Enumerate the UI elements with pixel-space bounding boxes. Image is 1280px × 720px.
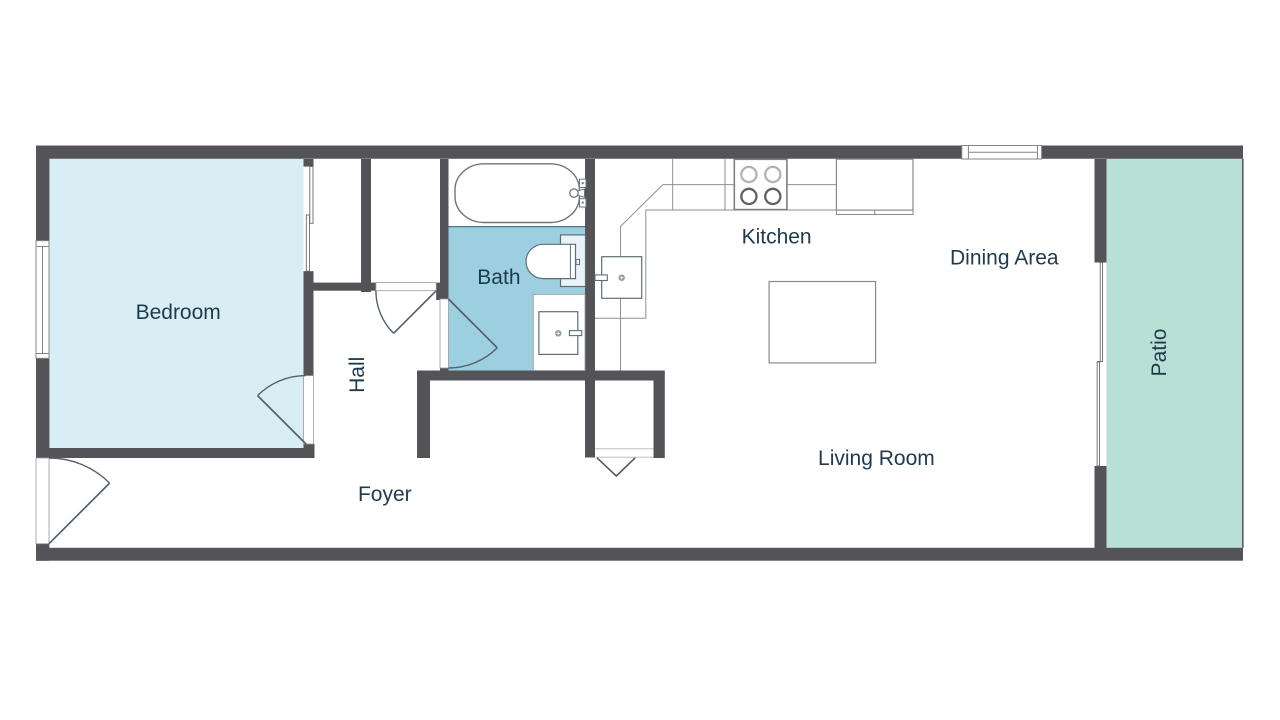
svg-text:Living Room: Living Room [818, 447, 935, 470]
svg-text:Dining Area: Dining Area [950, 247, 1059, 270]
svg-text:Bedroom: Bedroom [136, 301, 221, 324]
svg-text:Bath: Bath [477, 266, 520, 289]
svg-text:Patio: Patio [1148, 329, 1171, 377]
svg-text:Foyer: Foyer [358, 483, 412, 506]
svg-text:Hall: Hall [346, 357, 369, 393]
svg-text:Kitchen: Kitchen [742, 225, 812, 248]
